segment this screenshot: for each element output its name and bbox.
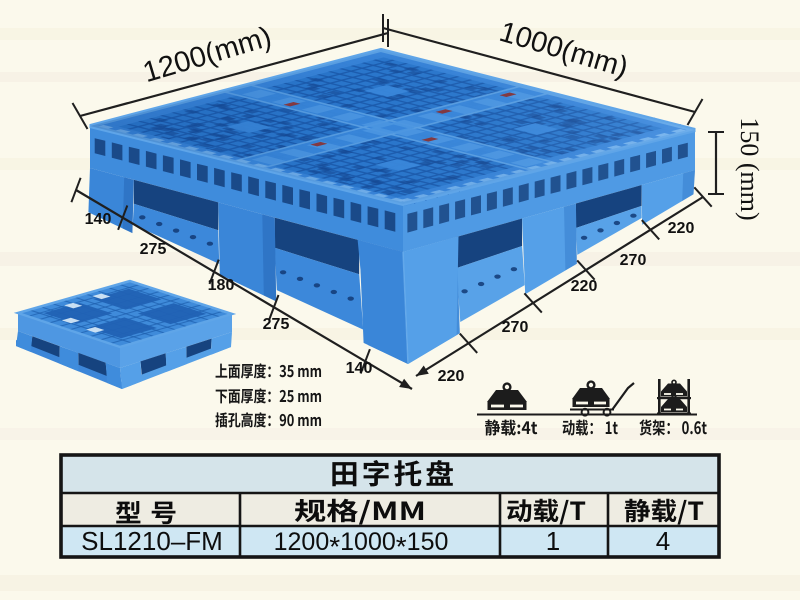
- svg-text:220: 220: [668, 220, 695, 237]
- svg-text:180: 180: [208, 277, 235, 294]
- svg-text:150 (mm): 150 (mm): [735, 117, 764, 220]
- svg-text:1: 1: [546, 526, 560, 556]
- svg-text:275: 275: [263, 316, 290, 333]
- svg-text:220: 220: [571, 278, 598, 295]
- svg-text:140: 140: [85, 211, 112, 228]
- svg-text:4: 4: [656, 526, 670, 556]
- svg-text:SL1210–FM: SL1210–FM: [81, 526, 223, 556]
- svg-text:140: 140: [346, 360, 373, 377]
- svg-text:270: 270: [620, 252, 647, 269]
- svg-text:270: 270: [502, 319, 529, 336]
- svg-text:220: 220: [438, 368, 465, 385]
- svg-text:275: 275: [140, 241, 167, 258]
